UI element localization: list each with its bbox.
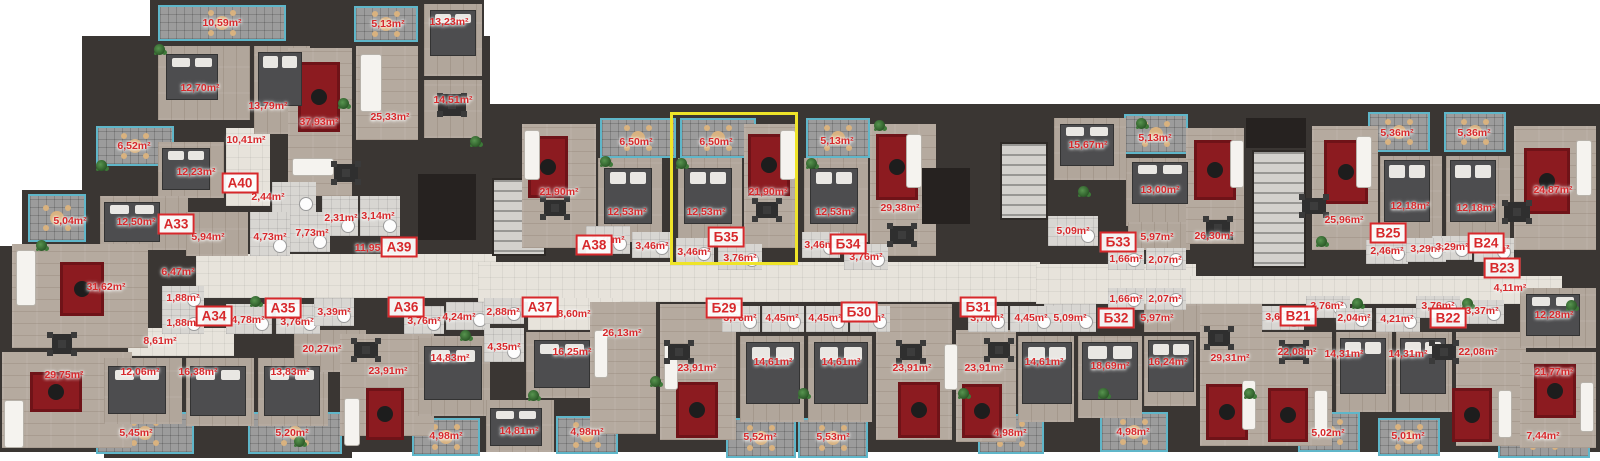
area-label: 6,47m²	[161, 266, 194, 278]
unit-label-в23[interactable]: В23	[1484, 258, 1521, 279]
rug	[1524, 148, 1570, 214]
plant	[1244, 388, 1255, 399]
area-label: 3,46m²	[635, 240, 668, 252]
area-label: 23,91m²	[677, 362, 716, 374]
sofa	[1356, 136, 1372, 188]
area-label: 4,98m²	[570, 426, 603, 438]
area-label: 12,70m²	[180, 82, 219, 94]
sofa	[360, 54, 382, 112]
area-label: 14,83m²	[430, 352, 469, 364]
area-label: 10,59m²	[202, 17, 241, 29]
area-label: 23,91m²	[368, 365, 407, 377]
area-label: 5,97m²	[1140, 231, 1173, 243]
area-label: 4,73m²	[253, 231, 286, 243]
stairwell	[1000, 142, 1048, 220]
dining-table	[1302, 198, 1326, 214]
area-label: 26,13m²	[602, 327, 641, 339]
plant	[470, 136, 481, 147]
sofa	[4, 400, 24, 448]
area-label: 2,07m²	[1148, 254, 1181, 266]
unit-label-б30[interactable]: Б30	[841, 302, 878, 323]
area-label: 5,53m²	[816, 431, 849, 443]
area-label: 4,98m²	[993, 427, 1026, 439]
dining-table	[52, 334, 72, 354]
sofa	[1498, 390, 1512, 438]
area-label: 12,06m²	[120, 366, 159, 378]
area-label: 15,67m²	[1068, 139, 1107, 151]
plant	[1316, 236, 1327, 247]
plant	[36, 240, 47, 251]
unit-label-в24[interactable]: В24	[1468, 233, 1505, 254]
bed	[746, 342, 800, 404]
area-label: 5,20m²	[275, 427, 308, 439]
unit-label-а39[interactable]: А39	[381, 237, 418, 258]
area-label: 22,08m²	[1458, 346, 1497, 358]
unit-label-в21[interactable]: В21	[1280, 306, 1317, 327]
area-label: 12,18m²	[1390, 200, 1429, 212]
area-label: 21,77m²	[1534, 366, 1573, 378]
plant	[1078, 186, 1089, 197]
dining-table	[1208, 330, 1230, 346]
area-label: 6,52m²	[117, 140, 150, 152]
area-label: 5,36m²	[1380, 127, 1413, 139]
area-label: 12,23m²	[176, 166, 215, 178]
sofa	[344, 398, 360, 446]
sofa	[292, 158, 334, 176]
plant	[650, 376, 661, 387]
unit-label-а40[interactable]: А40	[222, 173, 259, 194]
area-label: 14,81m²	[499, 425, 538, 437]
area-label: 29,38m²	[880, 202, 919, 214]
dining-table	[334, 164, 358, 182]
dining-table	[988, 342, 1010, 358]
sofa	[944, 344, 958, 390]
area-label: 8,60m²	[557, 308, 590, 320]
area-label: 16,24m²	[1148, 356, 1187, 368]
area-label: 6,50m²	[619, 136, 652, 148]
area-label: 4,45m²	[808, 312, 841, 324]
area-label: 5,94m²	[191, 231, 224, 243]
area-label: 21,90m²	[539, 186, 578, 198]
area-label: 4,11m²	[1494, 282, 1527, 294]
area-label: 8,61m²	[143, 335, 176, 347]
plant	[1098, 388, 1109, 399]
unit-label-б29[interactable]: Б29	[706, 298, 743, 319]
area-label: 2,88m²	[486, 306, 519, 318]
area-label: 5,02m²	[1311, 427, 1344, 439]
sofa	[1230, 140, 1244, 188]
area-label: 12,50m²	[116, 216, 155, 228]
area-label: 5,04m²	[53, 215, 86, 227]
area-label: 20,27m²	[302, 343, 341, 355]
dining-table	[1504, 202, 1530, 222]
area-label: 14,61m²	[821, 356, 860, 368]
unit-label-б32[interactable]: Б32	[1098, 308, 1135, 329]
area-label: 13,00m²	[1140, 184, 1179, 196]
area-label: 5,09m²	[1053, 312, 1086, 324]
unit-label-в22[interactable]: В22	[1430, 308, 1467, 329]
area-label: 26,30m²	[1194, 230, 1233, 242]
area-label: 12,53m²	[815, 206, 854, 218]
sofa	[1576, 140, 1592, 196]
elevator-core	[418, 174, 476, 240]
area-label: 2,07m²	[1148, 293, 1181, 305]
stairwell	[1252, 150, 1306, 268]
sofa	[16, 250, 36, 306]
plant	[1136, 118, 1147, 129]
area-label: 3,14m²	[361, 210, 394, 222]
unit-label-а35[interactable]: А35	[265, 298, 302, 319]
rug	[366, 388, 404, 440]
area-label: 10,41m²	[226, 134, 265, 146]
area-label: 12,18m²	[1456, 202, 1495, 214]
area-label: 5,13m²	[1138, 132, 1171, 144]
area-label: 25,96m²	[1324, 214, 1363, 226]
area-label: 1,66m²	[1109, 253, 1142, 265]
area-label: 4,35m²	[487, 341, 520, 353]
area-label: 2,46m²	[1370, 245, 1403, 257]
floor-plan: 10,59m²5,13m²13,23m²12,70m²13,79m²14,51m…	[0, 0, 1600, 461]
area-label: 4,21m²	[1380, 313, 1413, 325]
plant	[806, 158, 817, 169]
area-label: 3,39m²	[317, 306, 350, 318]
area-label: 14,51m²	[433, 94, 472, 106]
area-label: 1,88m²	[166, 292, 199, 304]
area-label: 5,97m²	[1140, 312, 1173, 324]
area-label: 13,79m²	[248, 100, 287, 112]
area-label: 13,83m²	[270, 366, 309, 378]
area-label: 29,75m²	[44, 369, 83, 381]
area-label: 13,23m²	[429, 16, 468, 28]
elevator-core	[922, 168, 970, 224]
area-label: 25,33m²	[370, 111, 409, 123]
area-label: 37,93m²	[299, 116, 338, 128]
area-label: 23,91m²	[892, 362, 931, 374]
elevator-core	[1246, 118, 1306, 148]
area-label: 14,31m²	[1324, 348, 1363, 360]
bed	[1384, 160, 1430, 222]
area-label: 29,31m²	[1210, 352, 1249, 364]
unit-label-б31[interactable]: Б31	[960, 297, 997, 318]
dining-table	[900, 344, 922, 360]
area-label: 5,01m²	[1391, 430, 1424, 442]
unit-label-а38[interactable]: А38	[576, 235, 613, 256]
bed	[258, 52, 302, 106]
rug	[676, 382, 718, 438]
unit-label-б33[interactable]: Б33	[1100, 232, 1137, 253]
area-label: 31,62m²	[86, 281, 125, 293]
area-label: 7,44m²	[1526, 430, 1559, 442]
area-label: 5,13m²	[371, 18, 404, 30]
plant	[528, 390, 539, 401]
unit-label-а34[interactable]: А34	[196, 306, 233, 327]
unit-label-в25[interactable]: В25	[1370, 223, 1407, 244]
plant	[338, 98, 349, 109]
area-label: 24,87m²	[1533, 184, 1572, 196]
unit-label-а36[interactable]: А36	[388, 297, 425, 318]
area-label: 1,66m²	[1109, 293, 1142, 305]
bed	[814, 342, 868, 404]
unit-label-а33[interactable]: А33	[158, 214, 195, 235]
area-label: 5,09m²	[1056, 225, 1089, 237]
dining-table	[544, 200, 566, 216]
bed	[1022, 342, 1072, 404]
area-label: 12,53m²	[607, 206, 646, 218]
area-label: 18,69m²	[1090, 360, 1129, 372]
area-label: 2,31m²	[324, 212, 357, 224]
dining-table	[890, 226, 914, 244]
sofa	[1580, 382, 1594, 432]
plant	[874, 120, 885, 131]
plant	[600, 156, 611, 167]
area-label: 5,52m²	[743, 431, 776, 443]
area-label: 22,08m²	[1277, 346, 1316, 358]
plant	[460, 330, 471, 341]
plant	[96, 160, 107, 171]
area-label: 4,98m²	[429, 430, 462, 442]
area-label: 3,29m²	[1435, 241, 1468, 253]
area-label: 5,13m²	[820, 135, 853, 147]
area-label: 4,98m²	[1116, 426, 1149, 438]
rug	[1452, 388, 1492, 442]
bed	[1132, 162, 1188, 204]
sofa	[906, 134, 922, 188]
sofa	[524, 130, 540, 180]
area-label: 4,78m²	[231, 314, 264, 326]
corridor	[196, 254, 496, 298]
area-label: 12,28m²	[1534, 309, 1573, 321]
rug	[898, 382, 940, 438]
plant	[958, 388, 969, 399]
plant	[154, 44, 165, 55]
area-label: 23,91m²	[964, 362, 1003, 374]
area-label: 4,45m²	[1014, 312, 1047, 324]
bed	[1340, 338, 1386, 394]
plant	[798, 388, 809, 399]
dining-table	[354, 342, 378, 358]
rug	[1268, 388, 1308, 442]
area-label: 2,04m²	[1337, 312, 1370, 324]
dining-table	[1432, 344, 1456, 360]
area-label: 4,45m²	[765, 312, 798, 324]
unit-label-б34[interactable]: Б34	[830, 234, 867, 255]
plant	[1352, 298, 1363, 309]
area-label: 5,36m²	[1457, 127, 1490, 139]
area-label: 16,25m²	[552, 346, 591, 358]
plant	[250, 296, 261, 307]
area-label: 14,61m²	[753, 356, 792, 368]
unit-label-а37[interactable]: А37	[522, 297, 559, 318]
area-label: 4,24m²	[442, 311, 475, 323]
area-label: 16,38m²	[178, 366, 217, 378]
selected-unit-highlight	[670, 112, 798, 265]
area-label: 7,73m²	[295, 227, 328, 239]
dining-table	[668, 344, 690, 360]
area-label: 3,37m²	[1465, 305, 1498, 317]
area-label: 5,45m²	[119, 427, 152, 439]
area-label: 14,61m²	[1024, 356, 1063, 368]
area-label: 14,31m²	[1388, 348, 1427, 360]
